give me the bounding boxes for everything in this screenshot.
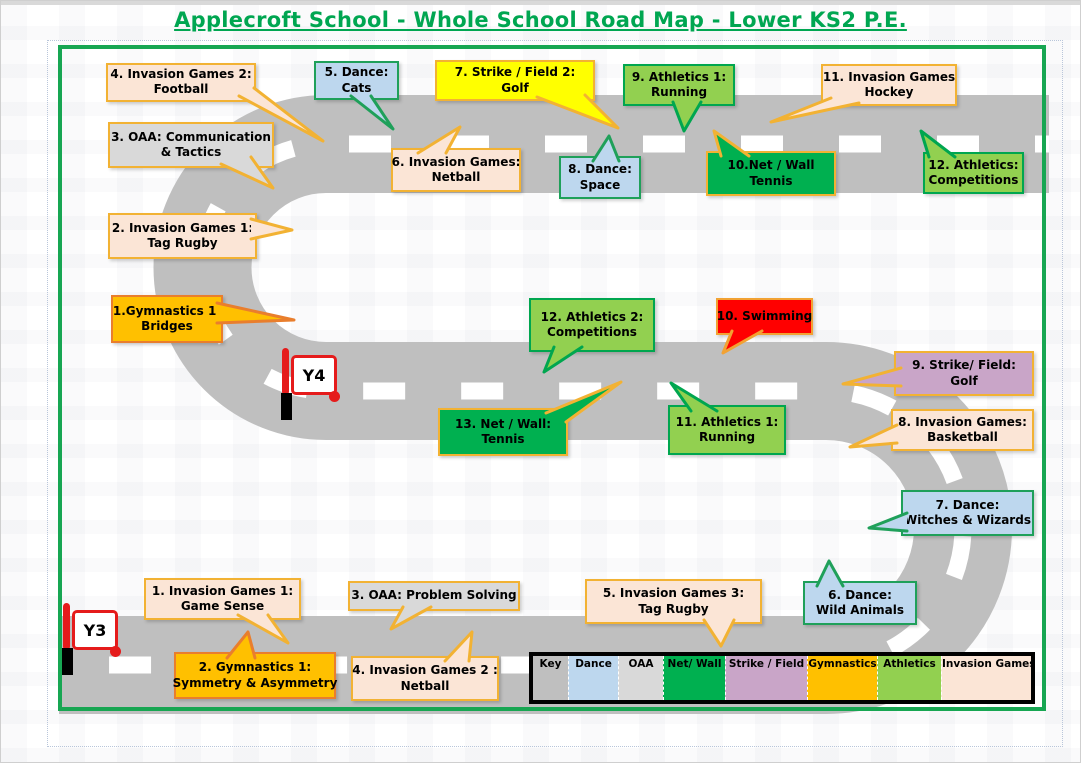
callout-label-line: Symmetry & Asymmetry	[173, 676, 338, 691]
callout-label-line: 6. Invasion Games:	[392, 155, 521, 170]
legend: KeyDanceOAANet/ WallStrike / FieldGymnas…	[529, 652, 1035, 704]
callout-label-line: 12. Athletics 2:	[541, 310, 644, 325]
callout-label-line: 8. Invasion Games:	[898, 415, 1027, 430]
legend-item-key: Key	[533, 656, 568, 700]
flag-y3: Y3	[63, 603, 123, 681]
callout-dance-wild-animals: 6. Dance:Wild Animals	[803, 581, 917, 625]
callout-net-wall-tennis-top: 10.Net / WallTennis	[706, 151, 836, 196]
callout-label-line: 13. Net / Wall:	[455, 417, 551, 432]
callout-oaa-problem-solving: 3. OAA: Problem Solving	[348, 581, 520, 611]
callout-label-line: Tag Rugby	[147, 236, 217, 251]
callout-label-line: 4. Invasion Games 2 :	[352, 663, 497, 678]
flag-label: Y3	[72, 610, 118, 650]
callout-dance-cats: 5. Dance:Cats	[314, 61, 399, 100]
callout-label-line: Tennis	[749, 174, 792, 189]
legend-item-gymnastics: Gymnastics	[807, 656, 877, 700]
callout-label-line: 11. Invasion Games	[823, 70, 955, 85]
callout-label-line: 3. OAA: Communication	[111, 130, 271, 145]
callout-oaa-communication-tactics: 3. OAA: Communication& Tactics	[108, 122, 274, 168]
callout-label-line: Golf	[501, 81, 528, 96]
flag-corner-dot	[110, 646, 121, 657]
flag-y4: Y4	[282, 348, 342, 426]
callout-athletics-2-competitions: 12. Athletics 2:Competitions	[529, 298, 655, 352]
callout-label-line: Golf	[950, 374, 977, 389]
callout-label-line: Bridges	[141, 319, 193, 334]
callout-label-line: 2. Gymnastics 1:	[199, 660, 311, 675]
callout-gymnastics-1-symmetry: 2. Gymnastics 1:Symmetry & Asymmetry	[174, 652, 336, 699]
callout-label-line: 7. Dance:	[936, 498, 1000, 513]
callout-invasion-games-2-football: 4. Invasion Games 2:Football	[106, 63, 256, 102]
callout-label-line: 7. Strike / Field 2:	[455, 65, 576, 80]
flag-pole	[282, 348, 289, 395]
callout-label-line: Football	[154, 82, 209, 97]
callout-label-line: 4. Invasion Games 2:	[110, 67, 251, 82]
flag-pole-base	[281, 393, 292, 420]
flag-label: Y4	[291, 355, 337, 395]
callout-label-line: 2. Invasion Games 1:	[112, 221, 253, 236]
legend-item-oaa: OAA	[618, 656, 663, 700]
callout-label-line: & Tactics	[161, 145, 222, 160]
flag-corner-dot	[329, 391, 340, 402]
callout-athletics-competitions-top: 12. Athletics:Competitions	[923, 152, 1024, 194]
legend-item-athletics: Athletics	[877, 656, 941, 700]
callout-dance-witches-wizards: 7. Dance:Witches & Wizards	[901, 490, 1034, 536]
callout-label-line: Netball	[432, 170, 481, 185]
callout-label-line: 9. Strike/ Field:	[912, 358, 1016, 373]
callout-label-line: 8. Dance:	[568, 162, 632, 177]
callout-label-line: Hockey	[864, 85, 913, 100]
callout-athletics-1-running-mid: 11. Athletics 1:Running	[668, 405, 786, 455]
callout-label-line: Competitions	[547, 325, 637, 340]
callout-athletics-1-running-top: 9. Athletics 1:Running	[623, 64, 735, 106]
callout-invasion-games-1-tag-rugby: 2. Invasion Games 1:Tag Rugby	[108, 213, 257, 259]
callout-label-line: 12. Athletics:	[928, 158, 1018, 173]
legend-item-strike-field: Strike / Field	[725, 656, 807, 700]
callout-invasion-games-netball-top: 6. Invasion Games:Netball	[391, 148, 521, 192]
callout-swimming: 10. Swimming	[716, 298, 813, 335]
callout-invasion-games-hockey: 11. Invasion GamesHockey	[821, 64, 957, 106]
flag-pole-base	[62, 648, 73, 675]
callout-label-line: Space	[580, 178, 621, 193]
callout-invasion-games-3-tag-rugby: 5. Invasion Games 3:Tag Rugby	[585, 579, 762, 624]
callout-dance-space: 8. Dance:Space	[559, 156, 641, 199]
callout-label-line: Cats	[342, 81, 372, 96]
legend-item-dance: Dance	[568, 656, 618, 700]
callout-label-line: 11. Athletics 1:	[676, 415, 779, 430]
callout-label-line: Tag Rugby	[638, 602, 708, 617]
callout-label-line: 9. Athletics 1:	[632, 70, 726, 85]
callout-strike-field-golf: 9. Strike/ Field:Golf	[894, 351, 1034, 396]
callout-label-line: Witches & Wizards	[904, 513, 1031, 528]
legend-item-invasion-games: Invasion Games	[941, 656, 1031, 700]
callout-label-line: Basketball	[927, 430, 998, 445]
callout-label-line: 1. Invasion Games 1:	[152, 584, 293, 599]
callout-label-line: 1.Gymnastics 1:	[113, 304, 221, 319]
page: Applecroft School - Whole School Road Ma…	[0, 0, 1081, 763]
callout-label-line: Wild Animals	[816, 603, 904, 618]
callout-label-line: Competitions	[929, 173, 1019, 188]
callout-label-line: 10. Swimming	[717, 309, 813, 324]
callout-label-line: 5. Invasion Games 3:	[603, 586, 744, 601]
callout-label-line: Game Sense	[181, 599, 264, 614]
callout-label-line: Netball	[401, 679, 450, 694]
flag-pole	[63, 603, 70, 650]
callout-net-wall-tennis-mid: 13. Net / Wall:Tennis	[438, 408, 568, 456]
callout-label-line: 3. OAA: Problem Solving	[351, 588, 516, 603]
legend-item-net-wall: Net/ Wall	[663, 656, 725, 700]
callout-gymnastics-1-bridges: 1.Gymnastics 1:Bridges	[111, 295, 223, 343]
callout-label-line: 5. Dance:	[325, 65, 389, 80]
callout-label-line: Running	[699, 430, 755, 445]
callout-label-line: Tennis	[481, 432, 524, 447]
callout-label-line: Running	[651, 85, 707, 100]
callout-label-line: 10.Net / Wall	[727, 158, 814, 173]
callout-invasion-games-2-netball: 4. Invasion Games 2 :Netball	[351, 656, 499, 701]
callout-invasion-games-basketball: 8. Invasion Games:Basketball	[891, 409, 1034, 451]
callout-invasion-games-1-game-sense: 1. Invasion Games 1:Game Sense	[144, 578, 301, 620]
callout-strike-field-2-golf: 7. Strike / Field 2:Golf	[435, 60, 595, 101]
callout-label-line: 6. Dance:	[828, 588, 892, 603]
